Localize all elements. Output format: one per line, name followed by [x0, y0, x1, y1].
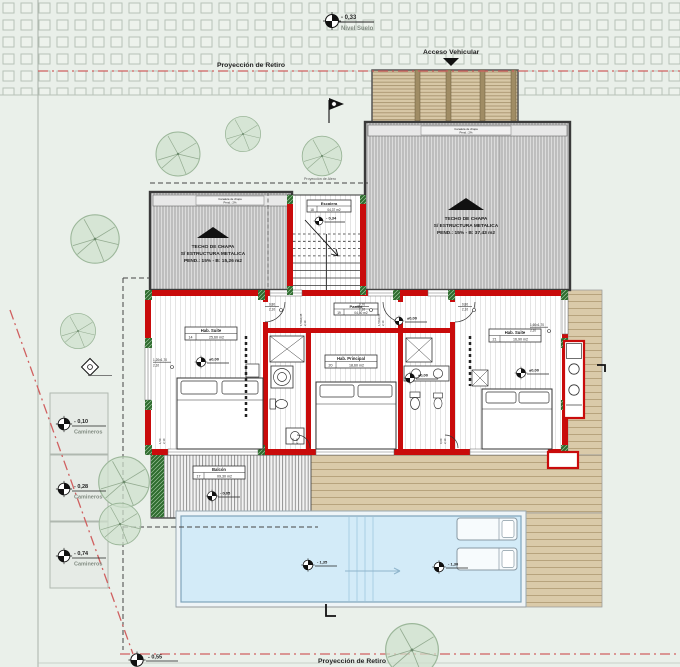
svg-text:20: 20: [329, 364, 333, 368]
opening-tag: 0,60 2,10: [439, 438, 447, 444]
svg-text:±0,00: ±0,00: [529, 368, 540, 373]
svg-text:18: 18: [310, 208, 314, 212]
svg-text:- 0,10: - 0,10: [74, 419, 88, 425]
svg-text:0,70: 0,70: [359, 303, 365, 307]
svg-text:21: 21: [493, 338, 497, 342]
svg-text:2,10: 2,10: [462, 308, 468, 312]
roof-right: Canaleta de chapa Pend.: 2% TECHO DE CHA…: [365, 122, 570, 290]
roof-label: PEND.: 15% - B: 15,26 m2: [184, 258, 242, 264]
svg-text:18,60 m2: 18,60 m2: [349, 364, 364, 368]
tree: [99, 457, 150, 508]
roof-label: PEND.: 15% - B: 37,43 m2: [437, 230, 495, 236]
svg-text:Hab. Suite: Hab. Suite: [505, 330, 526, 335]
paver-driveway-area: [0, 0, 680, 95]
alero-label: Proyección de Alero: [304, 177, 336, 181]
svg-text:- 1,35: - 1,35: [317, 560, 328, 565]
roof-left: Canaleta de chapa Pend.: 2% TECHO DE CHA…: [150, 192, 292, 290]
tree: [156, 132, 200, 176]
toilet: [270, 399, 288, 409]
room-label: Hab. Suite 14 25,60 m2: [185, 327, 237, 340]
tree: [302, 136, 342, 176]
outdoor-counter: [548, 452, 578, 468]
svg-text:2,10: 2,10: [381, 320, 385, 326]
svg-text:2,10: 2,10: [153, 363, 159, 367]
roof-label: S/ ESTRUCTURA METALICA: [434, 223, 499, 229]
svg-text:04,37 m2: 04,37 m2: [327, 208, 341, 212]
svg-text:Escalera: Escalera: [321, 201, 338, 206]
bidet: [434, 393, 443, 409]
svg-text:09,30 m2: 09,30 m2: [217, 475, 232, 479]
room-label: Balcón 17 09,30 m2: [193, 466, 245, 479]
svg-text:2,10: 2,10: [359, 308, 365, 312]
floor-plan: Canaleta de chapa Pend.: 2% TECHO DE CHA…: [0, 0, 680, 667]
svg-text:0,80: 0,80: [462, 303, 468, 307]
roof-label: TECHO DE CHAPA: [192, 244, 235, 250]
planter-strip: [151, 455, 164, 518]
bed: [482, 389, 552, 449]
svg-text:±0,00: ±0,00: [209, 357, 220, 362]
svg-text:2,10: 2,10: [530, 328, 536, 332]
tree: [99, 503, 141, 545]
svg-text:Camineros: Camineros: [74, 495, 102, 501]
svg-text:±0,00: ±0,00: [407, 316, 418, 321]
svg-text:14: 14: [189, 336, 193, 340]
room-label: Hab. Principal 20 18,60 m2: [325, 355, 377, 368]
retiro-label-top: Proyección de Retiro: [217, 62, 285, 69]
gutter-label: Pend.: 2%: [460, 130, 473, 134]
tree: [60, 313, 95, 348]
site-plan-svg: Canaleta de chapa Pend.: 2% TECHO DE CHA…: [0, 0, 680, 667]
svg-text:- 0,34: - 0,34: [326, 216, 337, 221]
nivel-suelo-value: - 0,33: [341, 15, 357, 21]
side-table: [472, 370, 488, 386]
svg-text:Balcón: Balcón: [212, 467, 226, 472]
svg-text:Hab. Suite: Hab. Suite: [201, 328, 222, 333]
svg-text:2,10: 2,10: [295, 438, 299, 444]
svg-text:25,60 m2: 25,60 m2: [209, 336, 224, 340]
svg-text:0,80: 0,80: [269, 303, 275, 307]
svg-text:1,60x1,70: 1,60x1,70: [530, 323, 544, 327]
pool-lounger: [457, 518, 517, 540]
gutter-label: Pend.: 2%: [224, 200, 237, 204]
bed: [316, 382, 396, 449]
retiro-label-bottom: Proyección de Retiro: [318, 658, 386, 665]
svg-text:17: 17: [197, 475, 201, 479]
svg-text:Camineros: Camineros: [74, 430, 102, 436]
opening-tag: 0,60 2,10: [291, 438, 299, 444]
svg-text:2,10: 2,10: [162, 438, 166, 444]
svg-text:2,10: 2,10: [269, 308, 275, 312]
svg-text:- 0,05: - 0,05: [220, 491, 231, 496]
carport-pergola: [372, 70, 518, 122]
svg-text:16,90 m2: 16,90 m2: [513, 338, 528, 342]
pool-lounger: [457, 548, 517, 570]
roof-label: TECHO DE CHAPA: [445, 216, 488, 222]
svg-text:2,10: 2,10: [303, 320, 307, 326]
svg-text:2,10: 2,10: [443, 438, 447, 444]
roof-label: S/ ESTRUCTURA METALICA: [181, 251, 246, 257]
svg-text:- 0,55: - 0,55: [148, 655, 162, 661]
pool: [176, 511, 526, 607]
toilet: [410, 392, 420, 410]
svg-text:19: 19: [337, 311, 341, 315]
tree: [225, 116, 260, 151]
svg-text:- 0,74: - 0,74: [74, 551, 89, 557]
svg-text:Hab. Principal: Hab. Principal: [337, 356, 365, 361]
svg-text:- 0,28: - 0,28: [74, 484, 88, 490]
svg-text:±0,00: ±0,00: [418, 373, 429, 378]
acceso-vehicular-label: Acceso Vehicular: [423, 49, 480, 56]
washer: [271, 366, 293, 388]
nivel-suelo-label: Nivel Suelo: [341, 26, 374, 32]
tree: [71, 215, 119, 263]
svg-text:1,20x1,70: 1,20x1,70: [153, 358, 167, 362]
room-label: Escalera 18 04,37 m2: [307, 200, 351, 212]
svg-text:Camineros: Camineros: [74, 562, 102, 568]
opening-tag: 1,50 2,10: [158, 438, 166, 444]
bbq-counter: [564, 341, 584, 418]
svg-text:- 1,30: - 1,30: [448, 562, 459, 567]
balcony-terrace: [151, 455, 311, 518]
